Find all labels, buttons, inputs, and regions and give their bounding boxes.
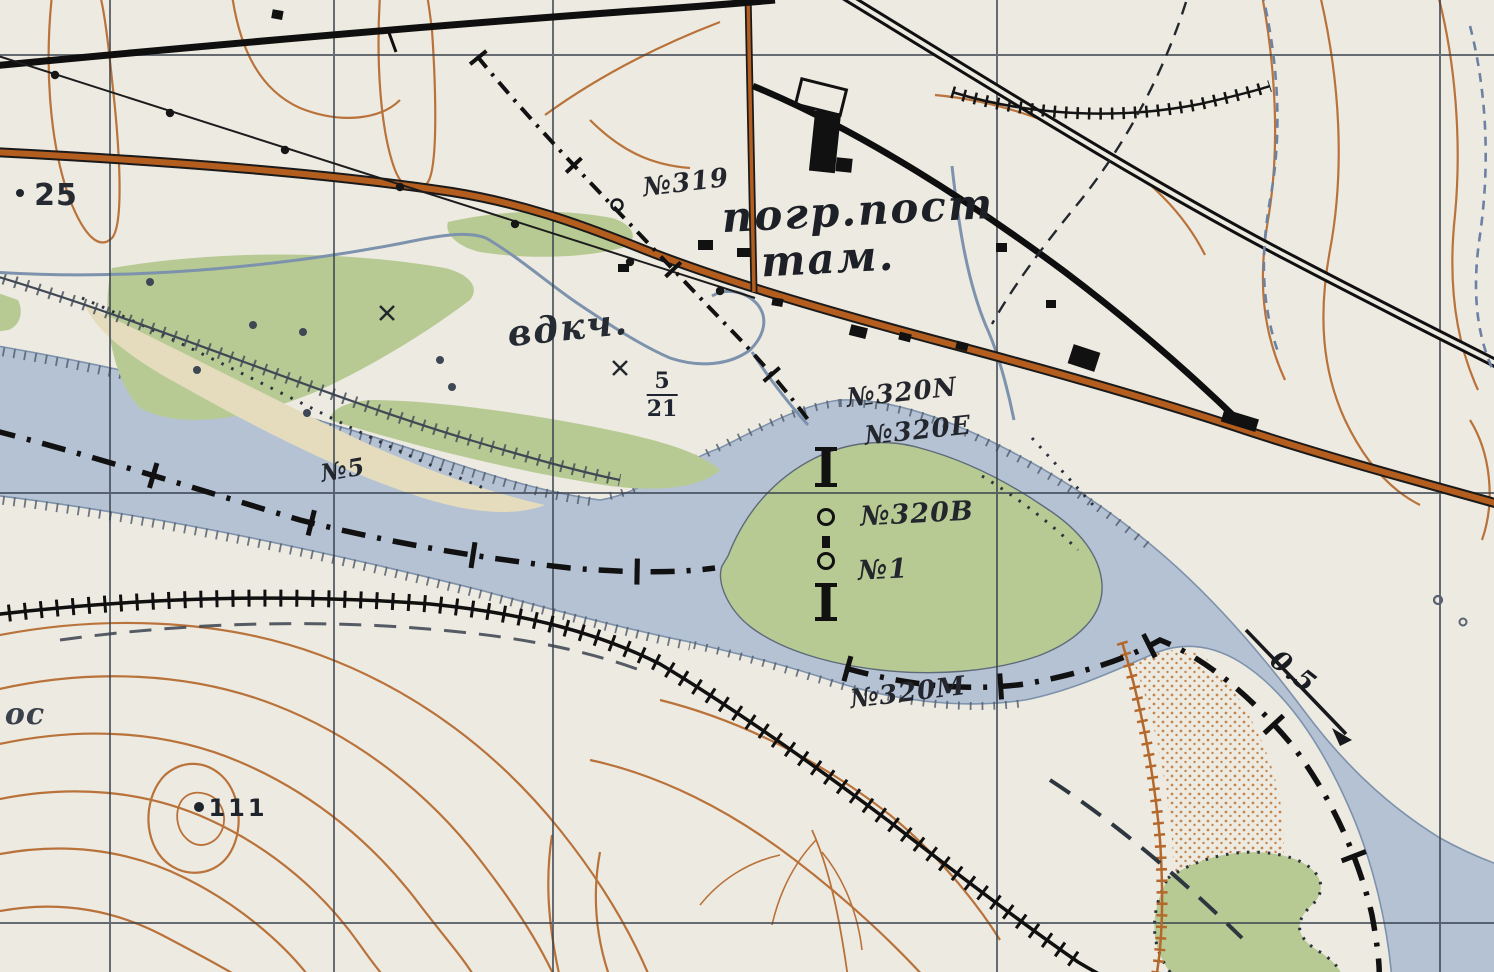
flow-direction-arrow xyxy=(1246,630,1352,746)
dashed-track xyxy=(60,624,645,672)
bottomright-green xyxy=(1154,852,1341,972)
map-graphics xyxy=(0,0,1494,972)
buildings xyxy=(618,79,1100,372)
map-canvas[interactable]: 25№319погр.посттам.вдкч.521№320N№320E№32… xyxy=(0,0,1494,972)
left-edge-green xyxy=(0,292,21,332)
black-road-top xyxy=(0,0,775,66)
